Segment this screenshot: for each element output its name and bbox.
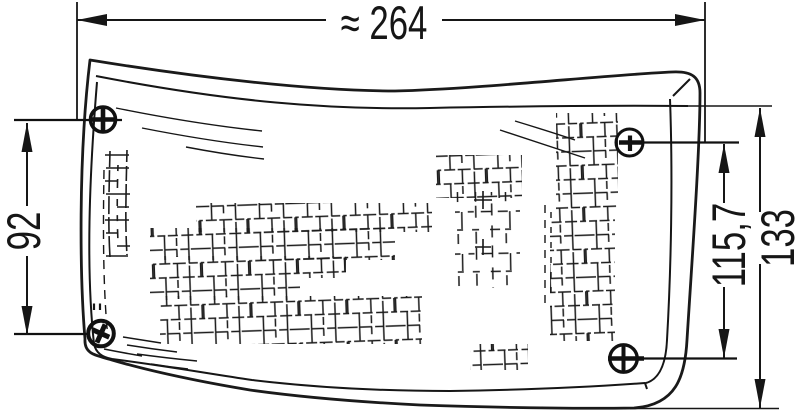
- svg-text:133: 133: [752, 209, 800, 267]
- svg-text:≈ 264: ≈ 264: [341, 0, 428, 49]
- svg-text:115,7: 115,7: [703, 203, 755, 287]
- svg-text:92: 92: [0, 212, 50, 251]
